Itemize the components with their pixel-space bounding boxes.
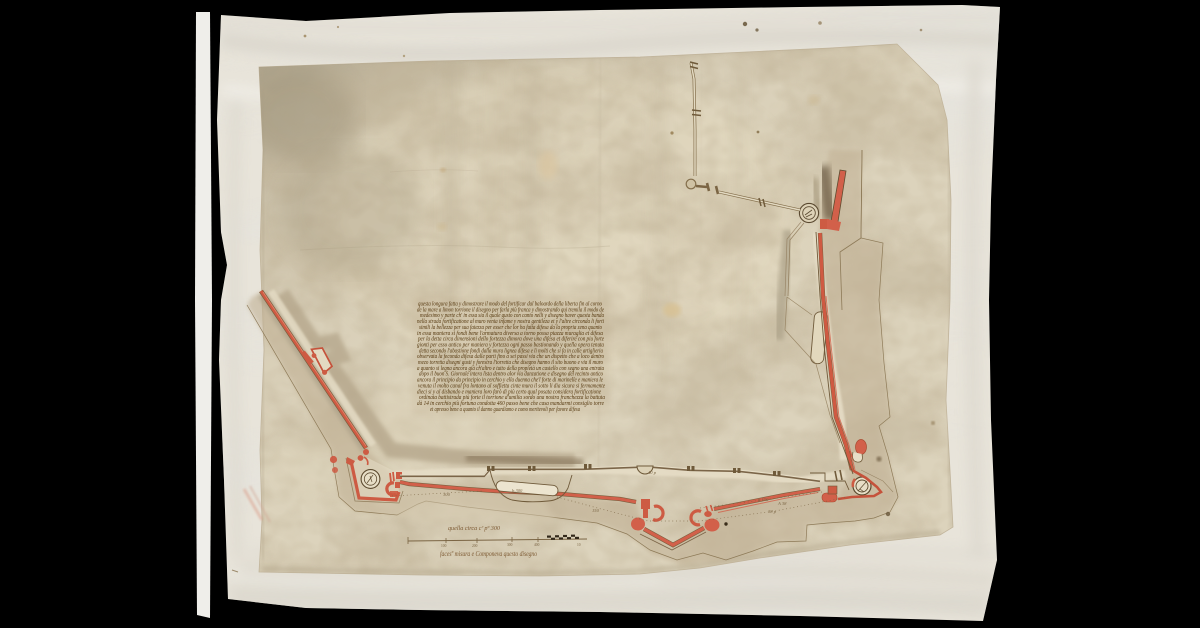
svg-text:facesº misura e Componeva ques: facesº misura e Componeva questo disegno [440, 551, 537, 558]
svg-text:38 p: 38 p [768, 509, 777, 514]
svg-text:200: 200 [472, 544, 478, 548]
svg-text:A 38: A 38 [777, 501, 787, 506]
svg-text:40 p: 40 p [648, 470, 657, 475]
svg-text:quella circa c’ pº 300: quella circa c’ pº 300 [448, 525, 501, 532]
svg-text:100: 100 [441, 544, 447, 548]
svg-text:150: 150 [592, 508, 600, 513]
svg-text:300: 300 [507, 543, 513, 547]
svg-text:400: 400 [534, 543, 540, 547]
svg-text:b.300: b.300 [512, 488, 523, 493]
svg-text:et apresso bene a quanto il da: et apresso bene a quanto il danno guardi… [430, 406, 580, 413]
svg-text:300: 300 [443, 492, 451, 497]
svg-text:p.150: p.150 [757, 497, 769, 502]
svg-text:10: 10 [577, 543, 581, 547]
